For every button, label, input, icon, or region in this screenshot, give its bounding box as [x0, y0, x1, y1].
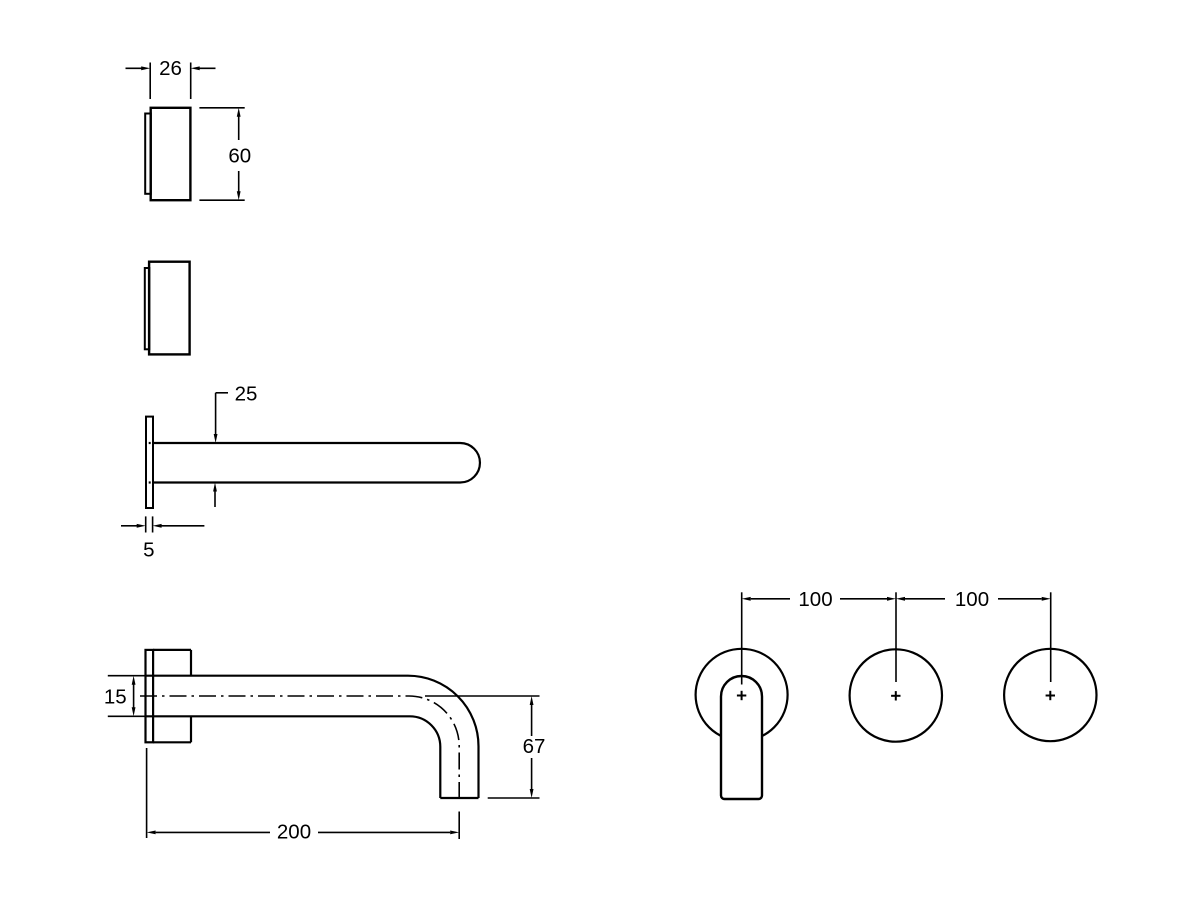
svg-text:5: 5 — [143, 539, 154, 562]
svg-text:100: 100 — [955, 588, 989, 611]
svg-text:67: 67 — [523, 735, 546, 758]
svg-text:60: 60 — [228, 145, 251, 168]
svg-text:25: 25 — [235, 383, 258, 406]
svg-text:26: 26 — [159, 57, 182, 80]
svg-text:15: 15 — [104, 686, 127, 709]
svg-text:100: 100 — [798, 588, 832, 611]
svg-text:200: 200 — [277, 821, 311, 844]
